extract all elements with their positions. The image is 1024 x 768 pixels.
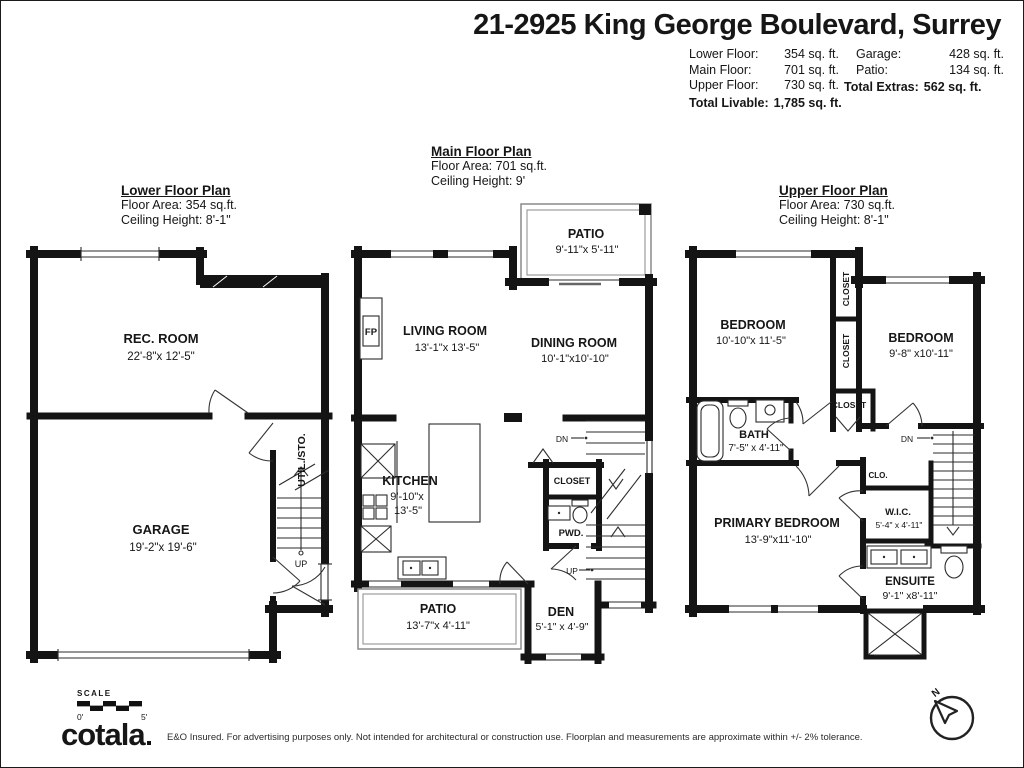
upper-floor-plan: BEDROOM 10'-10"x 11'-5" BEDROOM 9'-8" x1… <box>684 246 991 666</box>
living-room-dims: 13'-1"x 13'-5" <box>415 342 480 354</box>
patio-bottom-label: PATIO <box>420 602 457 616</box>
patio-top-dims: 9'-11"x 5'-11" <box>556 244 619 256</box>
pwd-label: PWD. <box>559 528 584 539</box>
stat-total-livable: Total Livable:1,785 sq. ft. <box>689 96 839 112</box>
main-patio-bottom <box>358 589 521 649</box>
clo-label: CLO. <box>868 471 887 480</box>
den-dims: 5'-1" x 4'-9" <box>536 621 589 633</box>
closet-c-label: CLOSET <box>832 400 867 410</box>
dn-label: DN <box>901 434 913 444</box>
upper-stairs <box>917 431 975 535</box>
dining-room-label: DINING ROOM <box>531 336 617 350</box>
dn-label: DN <box>556 434 568 444</box>
stat-label: Garage: <box>856 47 901 63</box>
lower-plan-title: Lower Floor Plan <box>121 183 237 198</box>
main-plan-title: Main Floor Plan <box>431 144 547 159</box>
rec-room-label: REC. ROOM <box>123 331 198 346</box>
main-patio-top <box>521 204 651 281</box>
fp-label: FP <box>365 327 378 338</box>
stat-total-extras: Total Extras:562 sq. ft. <box>844 80 1004 96</box>
up-label: UP <box>295 559 308 569</box>
compass-arrow <box>935 701 957 723</box>
stat-label: Main Floor: <box>689 63 752 79</box>
upper-plan-title: Upper Floor Plan <box>779 183 895 198</box>
upper-walls <box>689 250 981 613</box>
lower-room-labels: REC. ROOM 22'-8"x 12'-5" GARAGE 19'-2"x … <box>123 331 308 569</box>
cotala-logo-mark <box>147 741 151 745</box>
disclaimer-text: E&O Insured. For advertising purposes on… <box>167 732 867 743</box>
bath-dims: 7'-5" x 4'-11" <box>728 443 784 454</box>
main-plan-ceiling: Ceiling Height: 9' <box>431 174 547 189</box>
stat-value: 730 sq. ft. <box>784 78 839 94</box>
upper-open-below-box <box>866 603 924 657</box>
ensuite-dims: 9'-1" x8'-11" <box>882 590 937 602</box>
main-plan-area: Floor Area: 701 sq.ft. <box>431 159 547 174</box>
stat-row: Main Floor: 701 sq. ft. <box>689 63 839 79</box>
garage-label: GARAGE <box>132 522 189 537</box>
rec-room-dims: 22'-8"x 12'-5" <box>127 351 195 363</box>
bedroom-2-dims: 9'-8" x10'-11" <box>889 348 953 360</box>
stat-label: Total Extras: <box>844 80 919 94</box>
bath-label: BATH <box>739 429 769 441</box>
stat-value: 701 sq. ft. <box>784 63 839 79</box>
util-sto-label: UTIL./STO. <box>296 433 308 487</box>
wic-label: W.I.C. <box>885 507 911 518</box>
bedroom-1-dims: 10'-10"x 11'-5" <box>716 335 786 347</box>
kitchen-label: KITCHEN <box>382 474 438 488</box>
scale-label: SCALE <box>77 689 112 698</box>
scale-bar-icon <box>77 700 147 712</box>
lower-windows <box>58 246 332 661</box>
stat-label: Lower Floor: <box>689 47 758 63</box>
lower-plan-ceiling: Ceiling Height: 8'-1" <box>121 213 237 228</box>
cotala-logo-text: cotala <box>61 717 145 752</box>
lower-plan-area: Floor Area: 354 sq.ft. <box>121 198 237 213</box>
patio-top-label: PATIO <box>568 227 605 241</box>
main-floor-plan: FP <box>351 199 666 664</box>
main-pwd-fixtures <box>548 500 588 523</box>
stat-label: Total Livable: <box>689 96 769 110</box>
garage-dims: 19'-2"x 19'-6" <box>129 542 197 554</box>
cotala-logo: cotala <box>61 717 151 753</box>
stat-value: 1,785 sq. ft. <box>774 96 842 110</box>
stats-right-column: Garage: 428 sq. ft. Patio: 134 sq. ft. T… <box>856 47 1004 96</box>
stat-value: 134 sq. ft. <box>949 63 1004 79</box>
closet-b-label: CLOSET <box>841 333 851 368</box>
upper-doors <box>767 402 922 599</box>
floorplan-page: 21-2925 King George Boulevard, Surrey Lo… <box>0 0 1024 768</box>
bedroom-2-label: BEDROOM <box>888 331 953 345</box>
primary-bedroom-dims: 13'-9"x11'-10" <box>745 534 812 546</box>
upper-plan-area: Floor Area: 730 sq.ft. <box>779 198 895 213</box>
ensuite-label: ENSUITE <box>885 576 935 588</box>
stats-left-column: Lower Floor: 354 sq. ft. Main Floor: 701… <box>689 47 839 111</box>
wic-dims: 5'-4" x 4'-11" <box>876 520 923 530</box>
lower-walls <box>30 250 329 659</box>
main-fireplace: FP <box>360 298 382 359</box>
stat-value: 428 sq. ft. <box>949 47 1004 63</box>
den-label: DEN <box>548 605 574 619</box>
page-title: 21-2925 King George Boulevard, Surrey <box>473 9 1001 42</box>
compass-icon: N <box>913 681 989 757</box>
kitchen-dims-2: 13'-5" <box>394 505 422 517</box>
main-plan-header: Main Floor Plan Floor Area: 701 sq.ft. C… <box>431 144 547 189</box>
compass-north-label: N <box>930 687 942 700</box>
closet-label: CLOSET <box>554 476 591 486</box>
stat-label: Patio: <box>856 63 888 79</box>
upper-ensuite-fixtures <box>867 546 967 578</box>
stat-label: Upper Floor: <box>689 78 758 94</box>
patio-bottom-dims: 13'-7"x 4'-11" <box>406 620 470 632</box>
stat-value: 354 sq. ft. <box>784 47 839 63</box>
stat-row: Lower Floor: 354 sq. ft. <box>689 47 839 63</box>
living-room-label: LIVING ROOM <box>403 324 487 338</box>
lower-plan-header: Lower Floor Plan Floor Area: 354 sq.ft. … <box>121 183 237 228</box>
kitchen-dims-1: 9'-10"x <box>390 491 424 503</box>
stat-row: Garage: 428 sq. ft. <box>856 47 1004 63</box>
up-label: UP <box>566 566 578 576</box>
upper-plan-header: Upper Floor Plan Floor Area: 730 sq.ft. … <box>779 183 895 228</box>
closet-a-label: CLOSET <box>841 271 851 306</box>
stat-value: 562 sq. ft. <box>924 80 982 94</box>
primary-bedroom-label: PRIMARY BEDROOM <box>714 516 840 530</box>
upper-plan-ceiling: Ceiling Height: 8'-1" <box>779 213 895 228</box>
stat-row: Patio: 134 sq. ft. <box>856 63 1004 79</box>
bedroom-1-label: BEDROOM <box>720 318 785 332</box>
lower-floor-plan: REC. ROOM 22'-8"x 12'-5" GARAGE 19'-2"x … <box>26 246 336 671</box>
dining-room-dims: 10'-1"x10'-10" <box>541 353 609 365</box>
stat-row: Upper Floor: 730 sq. ft. <box>689 78 839 94</box>
